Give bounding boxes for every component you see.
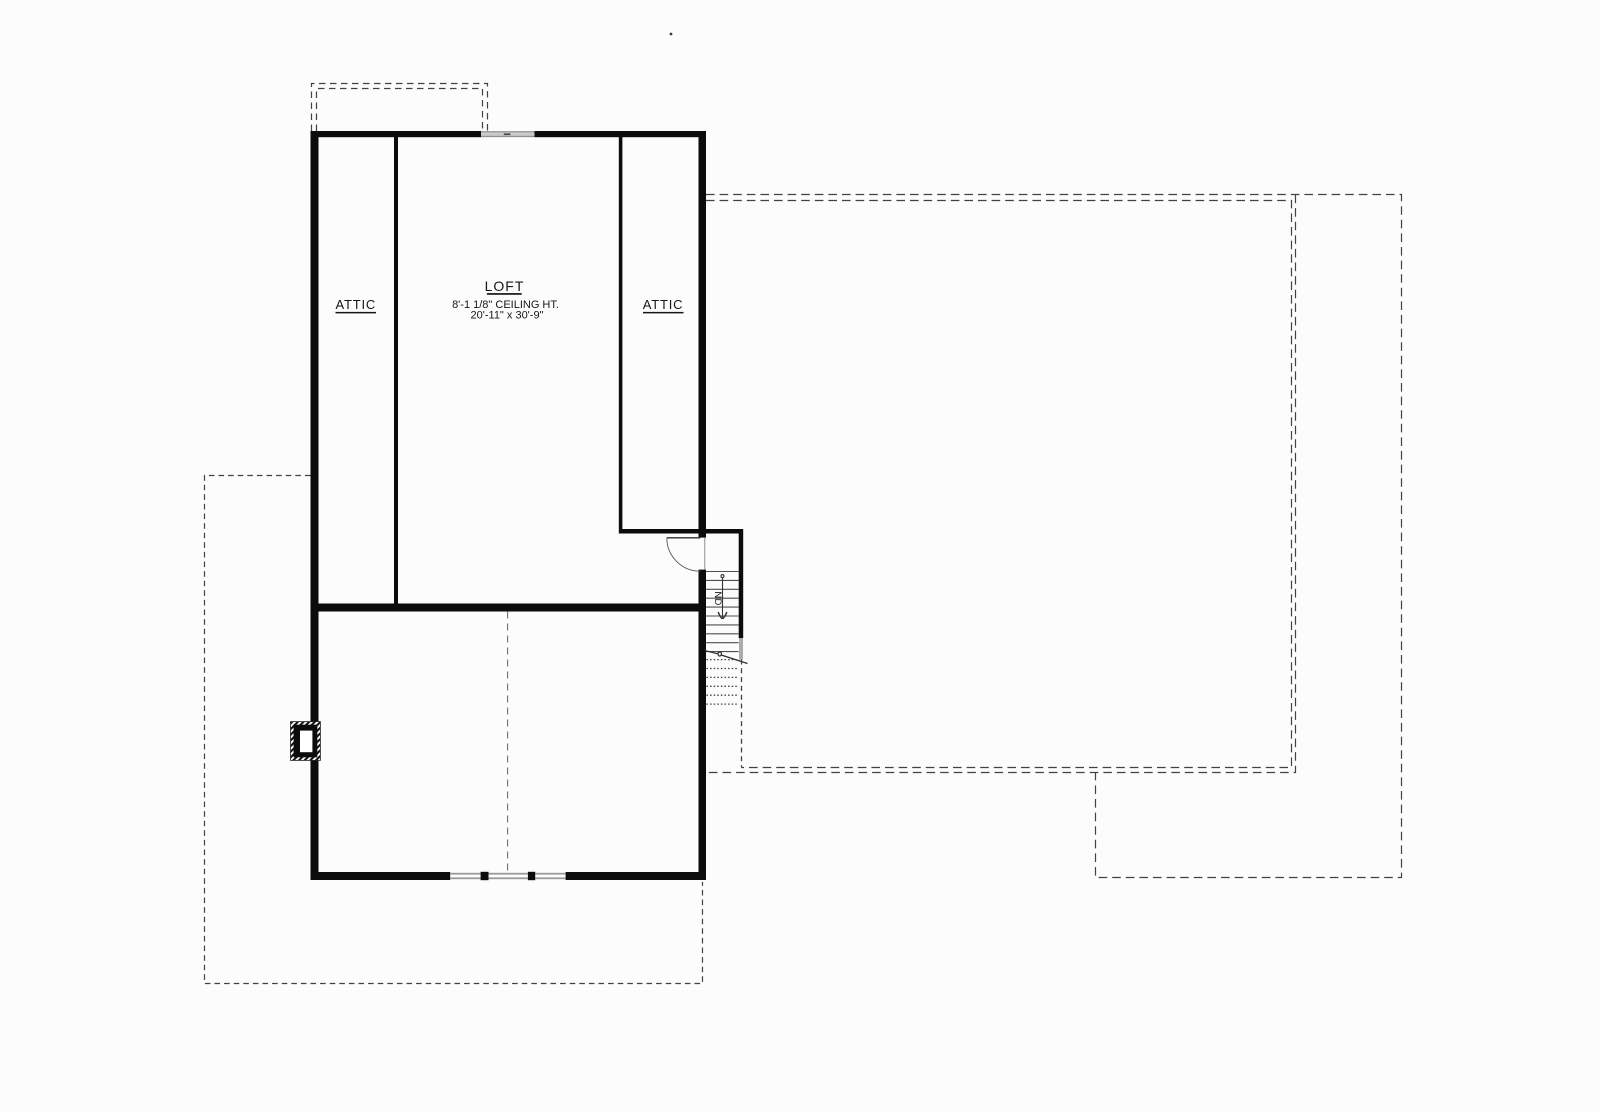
svg-text:LOFT: LOFT xyxy=(485,278,525,294)
svg-text:20'-11" x 30'-9": 20'-11" x 30'-9" xyxy=(471,309,544,321)
svg-text:ATTIC: ATTIC xyxy=(336,297,377,312)
svg-text:ATTIC: ATTIC xyxy=(643,297,684,312)
svg-text:ND: ND xyxy=(712,591,723,605)
